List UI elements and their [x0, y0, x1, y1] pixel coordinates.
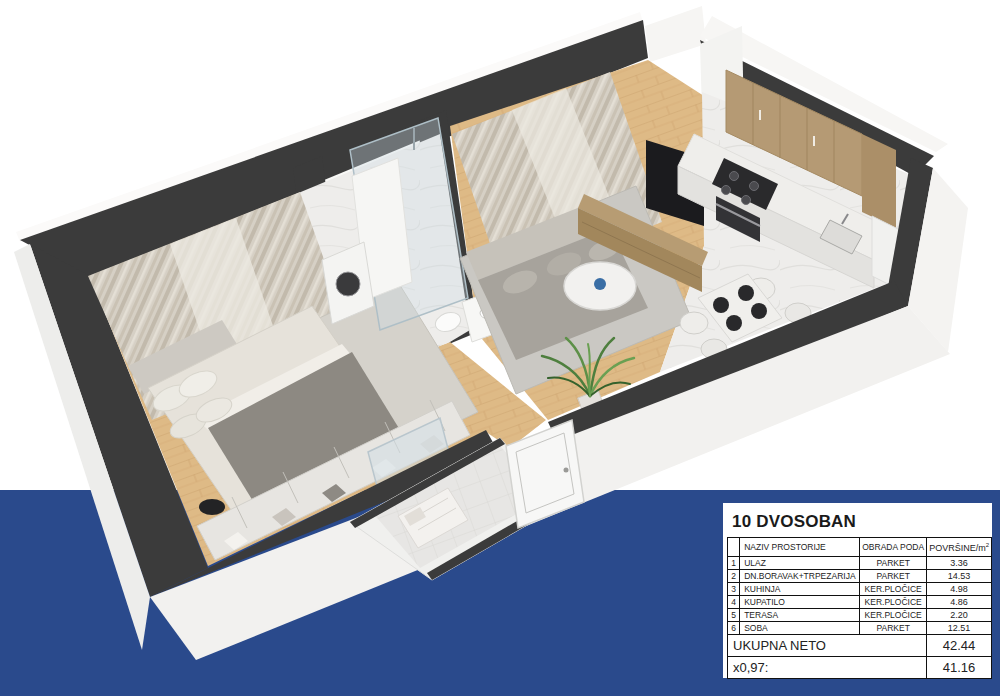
burner: [730, 172, 739, 181]
table-row: 3 KUHINJA KER.PLOČICE 4.98: [728, 583, 992, 596]
cell-area: 3.36: [927, 557, 992, 570]
header-floor: OBRADA PODA: [860, 538, 927, 557]
place-mat: [751, 303, 767, 319]
cell-row-number: 3: [728, 583, 740, 596]
total-value: 42.44: [927, 635, 992, 657]
total-label: UKUPNA NETO: [728, 635, 927, 657]
nook-outer-face: [645, 6, 706, 62]
cell-row-number: 5: [728, 609, 740, 622]
table-row: 2 DN.BORAVAK+TRPEZARIJA PARKET 14.53: [728, 570, 992, 583]
coffee-table: [564, 262, 636, 310]
cell-room-name: KUHINJA: [740, 583, 860, 596]
cell-row-number: 4: [728, 596, 740, 609]
burner: [722, 186, 731, 195]
cell-floor-type: KER.PLOČICE: [860, 609, 927, 622]
factor-row: x0,97: 41.16: [728, 657, 992, 679]
header-name: NAZIV PROSTORIJE: [740, 538, 860, 557]
cell-area: 14.53: [927, 570, 992, 583]
place-mat: [738, 285, 754, 301]
washer-door: [336, 272, 360, 296]
cell-floor-type: PARKET: [860, 570, 927, 583]
cell-floor-type: PARKET: [860, 557, 927, 570]
cell-area: 12.51: [927, 622, 992, 635]
place-mat: [726, 315, 742, 331]
burner: [750, 182, 759, 191]
dining-chair: [680, 312, 708, 334]
page: { "palette": { "background": "#ffffff", …: [0, 0, 1000, 696]
table-row: 6 SOBA PARKET 12.51: [728, 622, 992, 635]
header-num: [728, 538, 740, 557]
cell-row-number: 6: [728, 622, 740, 635]
cell-room-name: ULAZ: [740, 557, 860, 570]
table-header-row: NAZIV PROSTORIJE OBRADA PODA POVRŠINE/m2: [728, 538, 992, 557]
kitchen-tall-cabinet: [862, 134, 896, 228]
table-row: 4 KUPATILO KER.PLOČICE 4.86: [728, 596, 992, 609]
area-summary-card: 10 DVOSOBAN NAZIV PROSTORIJE OBRADA PODA…: [723, 503, 992, 678]
cell-area: 4.86: [927, 596, 992, 609]
bedside-stool: [199, 499, 225, 515]
cell-floor-type: KER.PLOČICE: [860, 596, 927, 609]
cell-floor-type: PARKET: [860, 622, 927, 635]
factor-label: x0,97:: [728, 657, 927, 679]
cell-area: 4.98: [927, 583, 992, 596]
header-area: POVRŠINE/m2: [927, 538, 992, 557]
table-row: 5 TERASA KER.PLOČICE 2.20: [728, 609, 992, 622]
cell-row-number: 2: [728, 570, 740, 583]
cell-room-name: KUPATILO: [740, 596, 860, 609]
table-row: 1 ULAZ PARKET 3.36: [728, 557, 992, 570]
door-handle: [564, 468, 569, 473]
table-decor: [594, 278, 606, 290]
cell-room-name: SOBA: [740, 622, 860, 635]
burner: [742, 196, 751, 205]
card-title: 10 DVOSOBAN: [732, 512, 856, 532]
cell-floor-type: KER.PLOČICE: [860, 583, 927, 596]
factor-value: 41.16: [927, 657, 992, 679]
cell-room-name: DN.BORAVAK+TRPEZARIJA: [740, 570, 860, 583]
area-table: NAZIV PROSTORIJE OBRADA PODA POVRŠINE/m2…: [727, 537, 992, 679]
place-mat: [713, 297, 729, 313]
cell-area: 2.20: [927, 609, 992, 622]
total-row: UKUPNA NETO 42.44: [728, 635, 992, 657]
cell-room-name: TERASA: [740, 609, 860, 622]
cell-row-number: 1: [728, 557, 740, 570]
